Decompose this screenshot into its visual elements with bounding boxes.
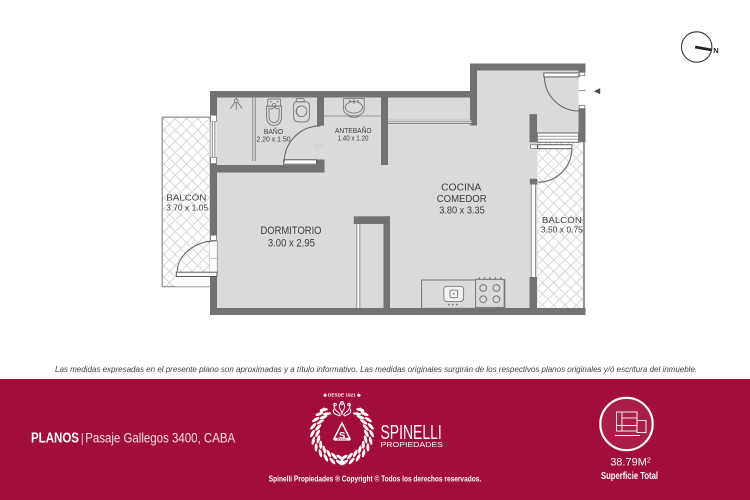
svg-text:PROPIEDADES: PROPIEDADES bbox=[381, 440, 443, 449]
svg-text:|: | bbox=[81, 430, 84, 445]
svg-text:3.80 x 3.35: 3.80 x 3.35 bbox=[439, 205, 485, 216]
svg-text:Las medidas expresadas en el p: Las medidas expresadas en el presente pl… bbox=[55, 365, 697, 374]
svg-text:SPINELLI: SPINELLI bbox=[337, 439, 347, 441]
svg-text:PLANOS: PLANOS bbox=[31, 429, 79, 446]
svg-text:BALCÓN: BALCÓN bbox=[542, 215, 582, 225]
svg-text:3.00 x 2.95: 3.00 x 2.95 bbox=[268, 237, 315, 249]
svg-text:1.40 x 1.20: 1.40 x 1.20 bbox=[338, 134, 369, 143]
svg-text:2.20 x 1.50: 2.20 x 1.50 bbox=[257, 135, 291, 144]
svg-text:DORMITORIO: DORMITORIO bbox=[261, 225, 322, 237]
svg-text:3.70 x 1.05: 3.70 x 1.05 bbox=[166, 204, 208, 213]
svg-text:N: N bbox=[713, 46, 718, 55]
svg-text:COCINA: COCINA bbox=[441, 183, 481, 194]
svg-text:COMEDOR: COMEDOR bbox=[437, 194, 487, 205]
svg-text:38.79M2: 38.79M2 bbox=[610, 457, 651, 469]
svg-text:BALCÓN: BALCÓN bbox=[166, 193, 206, 203]
svg-text:3.50 x 0.75: 3.50 x 0.75 bbox=[541, 225, 583, 234]
svg-text:Superficie Total: Superficie Total bbox=[601, 471, 658, 482]
svg-text:Spinelli Propiedades ® Copyrig: Spinelli Propiedades ® Copyright © Todos… bbox=[269, 474, 481, 484]
svg-text:◆ DESDE 1921 ◆: ◆ DESDE 1921 ◆ bbox=[322, 393, 361, 399]
svg-text:Pasaje Gallegos 3400, CABA: Pasaje Gallegos 3400, CABA bbox=[85, 430, 235, 446]
